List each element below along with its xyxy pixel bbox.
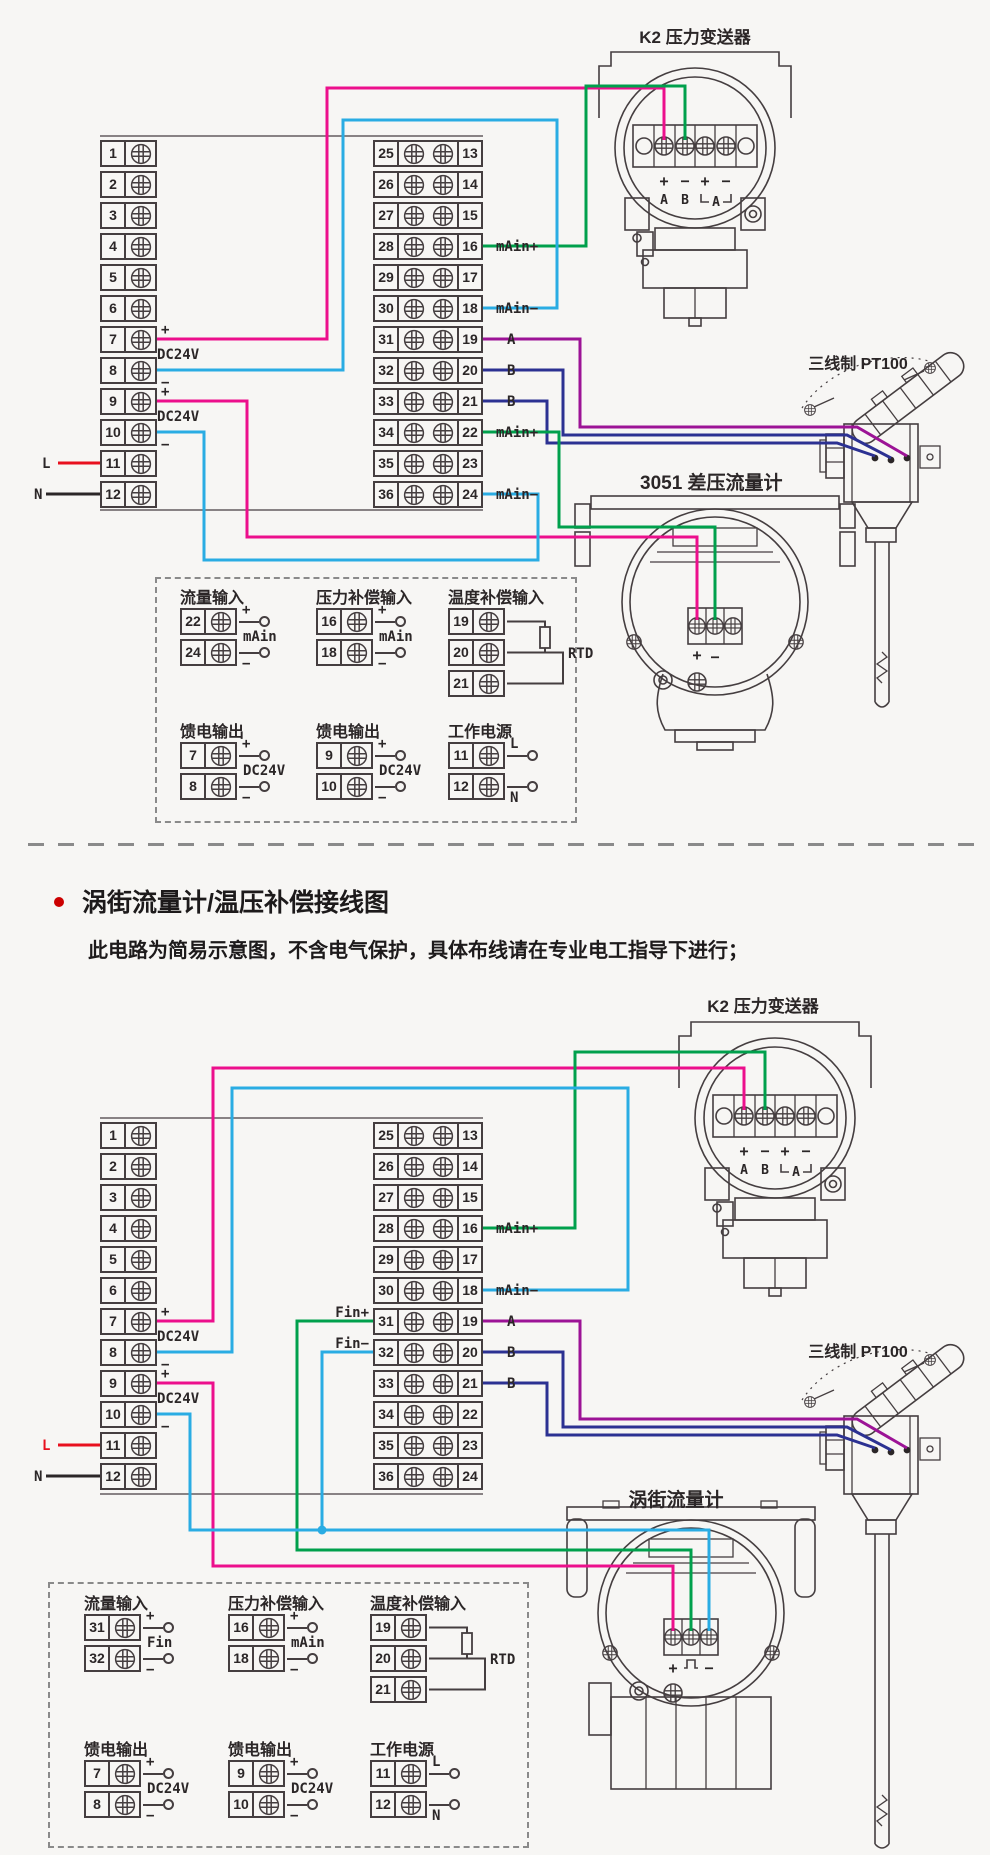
terminal-number: 25 [375,1124,399,1147]
screw-terminal-icon [126,1434,155,1457]
pt100-probe [875,1534,889,1848]
wire-terminal-circle [449,1799,460,1810]
screw-terminal-icon [428,328,457,351]
screw-terminal-icon [399,1217,428,1240]
terminal-block: 123456789101112 [100,140,157,512]
wire-junction-dot [318,1526,327,1535]
wire-terminal-circle [307,1768,318,1779]
polarity-label: + [290,1608,298,1624]
wire-stub [143,1658,163,1660]
wire-terminal-circle [395,616,406,627]
polarity-label: L [510,736,518,752]
terminal-number: 16 [230,1616,254,1639]
legend-item: 压力补偿输入16+18−mAin [228,1590,324,1614]
terminal-row: 12 [448,773,505,800]
screw-terminal-icon [428,359,457,382]
terminal-row: 2513 [373,140,483,167]
terminal-number: 31 [375,328,399,351]
terminal-number: 9 [318,744,342,767]
screw-terminal-icon [126,1372,155,1395]
terminal-number: 2 [102,173,126,196]
wire-label: B [507,363,515,379]
terminal-block: 2513261427152816291730183119322033213422… [373,140,483,512]
terminal-row: 2513 [373,1122,483,1149]
polarity-label: + [378,736,386,752]
legend-item: 馈电输出7+8−DC24V [180,718,244,742]
wire-stub [239,786,259,788]
wire-terminal-circle [259,750,270,761]
terminal-number: 9 [102,390,126,413]
terminal-number: 28 [375,1217,399,1240]
polarity-label: − [378,790,386,806]
wire-terminal-circle [395,750,406,761]
terminal-block: 2513261427152816291730183119322033213422… [373,1122,483,1494]
meter-plus-label: + [668,1659,677,1677]
wire-label: mAin+ [496,239,538,255]
terminal-row: 20 [448,639,505,666]
terminal-row: 12 [100,1463,157,1490]
terminal-number: 17 [457,266,481,289]
wire-label: mAin− [496,487,538,503]
terminal-number: 7 [102,1310,126,1333]
k2-terminal-labels: + − + − A B A [739,1142,810,1180]
wire-stub [239,755,259,757]
terminal-row: 3321 [373,1370,483,1397]
screw-terminal-icon [126,1124,155,1147]
terminal-row: 10 [228,1791,285,1818]
terminal-row: 8 [180,773,237,800]
wire-terminal-circle [259,781,270,792]
terminal-number: 16 [457,1217,481,1240]
terminal-row: 7 [180,742,237,769]
polarity-label: − [290,1808,298,1824]
terminal-number: 11 [372,1762,396,1785]
svg-text:−: − [680,172,689,190]
svg-text:A: A [792,1165,800,1180]
terminal-row: 16 [228,1614,285,1641]
section-divider [28,843,980,846]
bullet-icon [54,897,64,907]
screw-terminal-icon [126,173,155,196]
terminal-row: 1 [100,140,157,167]
polarity-label: − [146,1662,154,1678]
section-title: 涡街流量计/温压补偿接线图 [82,883,389,919]
terminal-row: 12 [370,1791,427,1818]
terminal-number: 26 [375,173,399,196]
terminal-number: 17 [457,1248,481,1271]
terminal-row: 31 [84,1614,141,1641]
screw-terminal-icon [110,1793,139,1816]
svg-text:A: A [740,1163,748,1178]
wire-terminal-circle [163,1799,174,1810]
wire-terminal-circle [163,1622,174,1633]
wire-stub [143,1804,163,1806]
terminal-number: 23 [457,1434,481,1457]
wire-stub [143,1627,163,1629]
terminal-number: 31 [86,1616,110,1639]
wire-label: B [507,394,515,410]
terminal-row: 4 [100,233,157,260]
legend-title: 压力补偿输入 [316,584,412,608]
screw-terminal-icon [428,1434,457,1457]
terminal-number: 14 [457,173,481,196]
wire-k2-to-main16 [452,86,685,246]
wire-stub [375,621,395,623]
polarity-label: + [242,602,250,618]
terminal-row: 2 [100,171,157,198]
screw-terminal-icon [399,1372,428,1395]
wire-stub [429,1773,449,1775]
terminal-row: 10 [100,1401,157,1428]
screw-terminal-icon [474,744,503,767]
screw-terminal-icon [126,235,155,258]
legend-item: 压力补偿输入16+18−mAin [316,584,412,608]
fin-label: Fin+ [330,1305,369,1321]
svg-text:B: B [681,193,689,208]
svg-text:+: + [659,172,668,190]
screw-terminal-icon [428,1217,457,1240]
legend-item: 工作电源11L12N [448,718,512,742]
screw-terminal-icon [399,297,428,320]
legend-title: 馈电输出 [180,718,244,742]
terminal-number: 20 [457,1341,481,1364]
terminal-number: 13 [457,142,481,165]
wire-stub [239,652,259,654]
terminal-number: 24 [182,641,206,664]
legend-title: 馈电输出 [84,1736,148,1760]
screw-terminal-icon [126,1341,155,1364]
terminal-row: 20 [370,1645,427,1672]
wire-stub [287,1627,307,1629]
screw-terminal-icon [399,235,428,258]
terminal-number: 2 [102,1155,126,1178]
pt100-label: 三线制 PT100 [808,354,908,373]
wire-stub [287,1804,307,1806]
screw-terminal-icon [254,1793,283,1816]
terminal-number: 11 [450,744,474,767]
screw-terminal-icon [428,1372,457,1395]
svg-text:A: A [712,195,720,210]
pt100-rtd-element [877,652,887,683]
screw-terminal-icon [428,1341,457,1364]
screw-terminal-icon [428,1248,457,1271]
legend-item: 温度补偿输入192021RTD [370,1590,466,1614]
terminal-row: 6 [100,1277,157,1304]
terminal-number: 35 [375,1434,399,1457]
screw-terminal-icon [206,610,235,633]
terminal-row: 3 [100,202,157,229]
screw-terminal-icon [428,297,457,320]
screw-terminal-icon [110,1647,139,1670]
terminal-number: 26 [375,1155,399,1178]
wire-terminal-circle [259,616,270,627]
terminal-number: 33 [375,390,399,413]
terminal-row: 9 [316,742,373,769]
wiring-diagram-page: + − + − A B A K2 压力变送器 三线制 PT100 3051 差压… [0,0,990,1855]
screw-terminal-icon [474,641,503,664]
screw-terminal-icon [126,1248,155,1271]
terminal-row: 1 [100,1122,157,1149]
terminal-number: 19 [450,610,474,633]
wire-label: mAin− [496,301,538,317]
legend-item: 流量输入31+32−Fin [84,1590,148,1614]
screw-terminal-icon [126,359,155,382]
mid-label: DC24V [291,1781,333,1797]
meter-minus-label: − [710,648,719,666]
terminal-number: 10 [102,421,126,444]
wire-label: mAin+ [496,1221,538,1237]
wire-label: mAin− [496,1283,538,1299]
polarity-label: N [432,1808,440,1824]
screw-terminal-icon [428,1124,457,1147]
terminal-number: 29 [375,266,399,289]
wire-label: DC24V [157,347,199,363]
legend-title: 工作电源 [448,718,512,742]
terminal-number: 27 [375,204,399,227]
terminal-number: 15 [457,204,481,227]
screw-terminal-icon [126,1403,155,1426]
terminal-row: 11 [448,742,505,769]
terminal-number: 34 [375,421,399,444]
terminal-row: 32 [84,1645,141,1672]
svg-text:RTD: RTD [568,646,593,662]
polarity-label: + [242,736,250,752]
terminal-row: 3119 [373,1308,483,1335]
terminal-number: 20 [450,641,474,664]
terminal-number: 25 [375,142,399,165]
terminal-number: 23 [457,452,481,475]
polarity-label: − [146,1808,154,1824]
meter-label: 3051 差压流量计 [640,471,783,494]
wire-label: DC24V [157,1391,199,1407]
screw-terminal-icon [126,1186,155,1209]
terminal-number: 5 [102,266,126,289]
terminal-number: 8 [102,359,126,382]
terminal-number: 7 [182,744,206,767]
legend-title: 流量输入 [84,1590,148,1614]
screw-terminal-icon [428,421,457,444]
wire-b2-to-pt100 [452,1383,875,1448]
screw-terminal-icon [399,1403,428,1426]
terminal-number: 21 [457,1372,481,1395]
terminal-number: 12 [102,1465,126,1488]
wire-b1-to-pt100 [452,370,891,458]
screw-terminal-icon [342,610,371,633]
svg-text:−: − [721,172,730,190]
terminal-number: 20 [372,1647,396,1670]
screw-terminal-icon [126,266,155,289]
legend-item: 工作电源11L12N [370,1736,434,1760]
terminal-row: 11 [100,450,157,477]
terminal-block: 123456789101112 [100,1122,157,1494]
terminal-number: 18 [318,641,342,664]
wire-label: DC24V [157,1329,199,1345]
wire-stub [375,755,395,757]
terminal-number: 12 [372,1793,396,1816]
terminal-row: 21 [370,1676,427,1703]
screw-terminal-icon [399,1279,428,1302]
terminal-number: 4 [102,1217,126,1240]
svg-text:B: B [761,1163,769,1178]
meter-minus-label: − [704,1659,713,1677]
terminal-number: 4 [102,235,126,258]
screw-terminal-icon [428,266,457,289]
screw-terminal-icon [399,204,428,227]
terminal-number: 19 [372,1616,396,1639]
terminal-number: 11 [102,1434,126,1457]
screw-terminal-icon [399,1186,428,1209]
terminal-row: 19 [370,1614,427,1641]
svg-text:A: A [660,193,668,208]
terminal-row: 7 [100,326,157,353]
wire-terminal-circle [307,1799,318,1810]
terminal-number: 9 [102,1372,126,1395]
screw-terminal-icon [126,1465,155,1488]
wire-stub [429,1804,449,1806]
rtd-wiring: RTD [427,1614,577,1714]
screw-terminal-icon [396,1762,425,1785]
line-label: L [42,1438,50,1454]
screw-terminal-icon [428,1465,457,1488]
terminal-number: 16 [457,235,481,258]
terminal-number: 32 [86,1647,110,1670]
screw-terminal-icon [428,1155,457,1178]
neutral-label: N [34,1469,42,1485]
legend-item: 馈电输出7+8−DC24V [84,1736,148,1760]
screw-terminal-icon [399,266,428,289]
screw-terminal-icon [399,452,428,475]
terminal-number: 8 [86,1793,110,1816]
screw-terminal-icon [342,744,371,767]
meter-label: 涡街流量计 [628,1488,723,1511]
wire-terminal-circle [307,1653,318,1664]
terminal-number: 22 [182,610,206,633]
screw-terminal-icon [474,775,503,798]
polarity-label: + [146,1608,154,1624]
terminal-row: 19 [448,608,505,635]
wire-label: + [161,1304,169,1320]
terminal-row: 2 [100,1153,157,1180]
screw-terminal-icon [428,142,457,165]
terminal-row: 3523 [373,1432,483,1459]
screw-terminal-icon [399,142,428,165]
terminal-row: 2917 [373,264,483,291]
wire-label: A [507,1314,515,1330]
terminal-number: 14 [457,1155,481,1178]
screw-terminal-icon [126,452,155,475]
terminal-row: 3624 [373,1463,483,1490]
terminal-number: 9 [230,1762,254,1785]
terminal-row: 4 [100,1215,157,1242]
wire-terminal-circle [395,647,406,658]
screw-terminal-icon [399,421,428,444]
wire-terminal-circle [259,647,270,658]
screw-terminal-icon [254,1616,283,1639]
terminal-row: 3 [100,1184,157,1211]
polarity-label: + [290,1754,298,1770]
screw-terminal-icon [342,641,371,664]
terminal-number: 30 [375,1279,399,1302]
svg-text:RTD: RTD [490,1652,515,1668]
screw-terminal-icon [428,173,457,196]
terminal-number: 10 [102,1403,126,1426]
terminal-number: 12 [102,483,126,506]
wire-label: B [507,1376,515,1392]
terminal-row: 3422 [373,419,483,446]
terminal-number: 27 [375,1186,399,1209]
wire-stub [375,786,395,788]
terminal-number: 35 [375,452,399,475]
terminal-row: 6 [100,295,157,322]
screw-terminal-icon [428,204,457,227]
wire-label: − [161,437,169,453]
mid-label: DC24V [147,1781,189,1797]
screw-terminal-icon [428,1403,457,1426]
terminal-number: 22 [457,421,481,444]
terminal-number: 22 [457,1403,481,1426]
polarity-label: − [242,656,250,672]
wire-terminal-circle [163,1653,174,1664]
screw-terminal-icon [399,1248,428,1271]
screw-terminal-icon [254,1647,283,1670]
terminal-number: 3 [102,1186,126,1209]
screw-terminal-icon [428,235,457,258]
pulse-symbol [684,1660,698,1668]
wire-label: − [161,1419,169,1435]
wire-terminal-circle [527,750,538,761]
screw-terminal-icon [126,204,155,227]
wire-stub [507,786,527,788]
terminal-row: 8 [100,357,157,384]
polarity-label: − [378,656,386,672]
terminal-row: 3220 [373,357,483,384]
terminal-row: 10 [100,419,157,446]
screw-terminal-icon [428,390,457,413]
screw-terminal-icon [126,1310,155,1333]
k2-label: K2 压力变送器 [639,27,751,47]
screw-terminal-icon [396,1647,425,1670]
terminal-number: 29 [375,1248,399,1271]
screw-terminal-icon [399,173,428,196]
terminal-number: 19 [457,328,481,351]
screw-terminal-icon [126,390,155,413]
terminal-number: 21 [450,672,474,695]
pt100-label: 三线制 PT100 [808,1342,908,1361]
terminal-number: 1 [102,1124,126,1147]
screw-terminal-icon [399,1434,428,1457]
wire-stub [375,652,395,654]
terminal-row: 3018 [373,1277,483,1304]
wire-label: + [161,1366,169,1382]
terminal-row: 10 [316,773,373,800]
terminal-number: 32 [375,359,399,382]
screw-terminal-icon [399,1341,428,1364]
terminal-number: 21 [372,1678,396,1701]
screw-terminal-icon [399,1310,428,1333]
terminal-row: 11 [100,1432,157,1459]
screw-terminal-icon [399,1124,428,1147]
wire-stub [287,1658,307,1660]
wire-label: + [161,384,169,400]
screw-terminal-icon [428,483,457,506]
svg-text:−: − [760,1142,769,1160]
mid-label: mAin [291,1635,325,1651]
polarity-label: − [242,790,250,806]
terminal-number: 18 [230,1647,254,1670]
meter-plus-label: + [692,646,701,664]
legend-item: 流量输入22+24−mAin [180,584,244,608]
screw-terminal-icon [396,1793,425,1816]
